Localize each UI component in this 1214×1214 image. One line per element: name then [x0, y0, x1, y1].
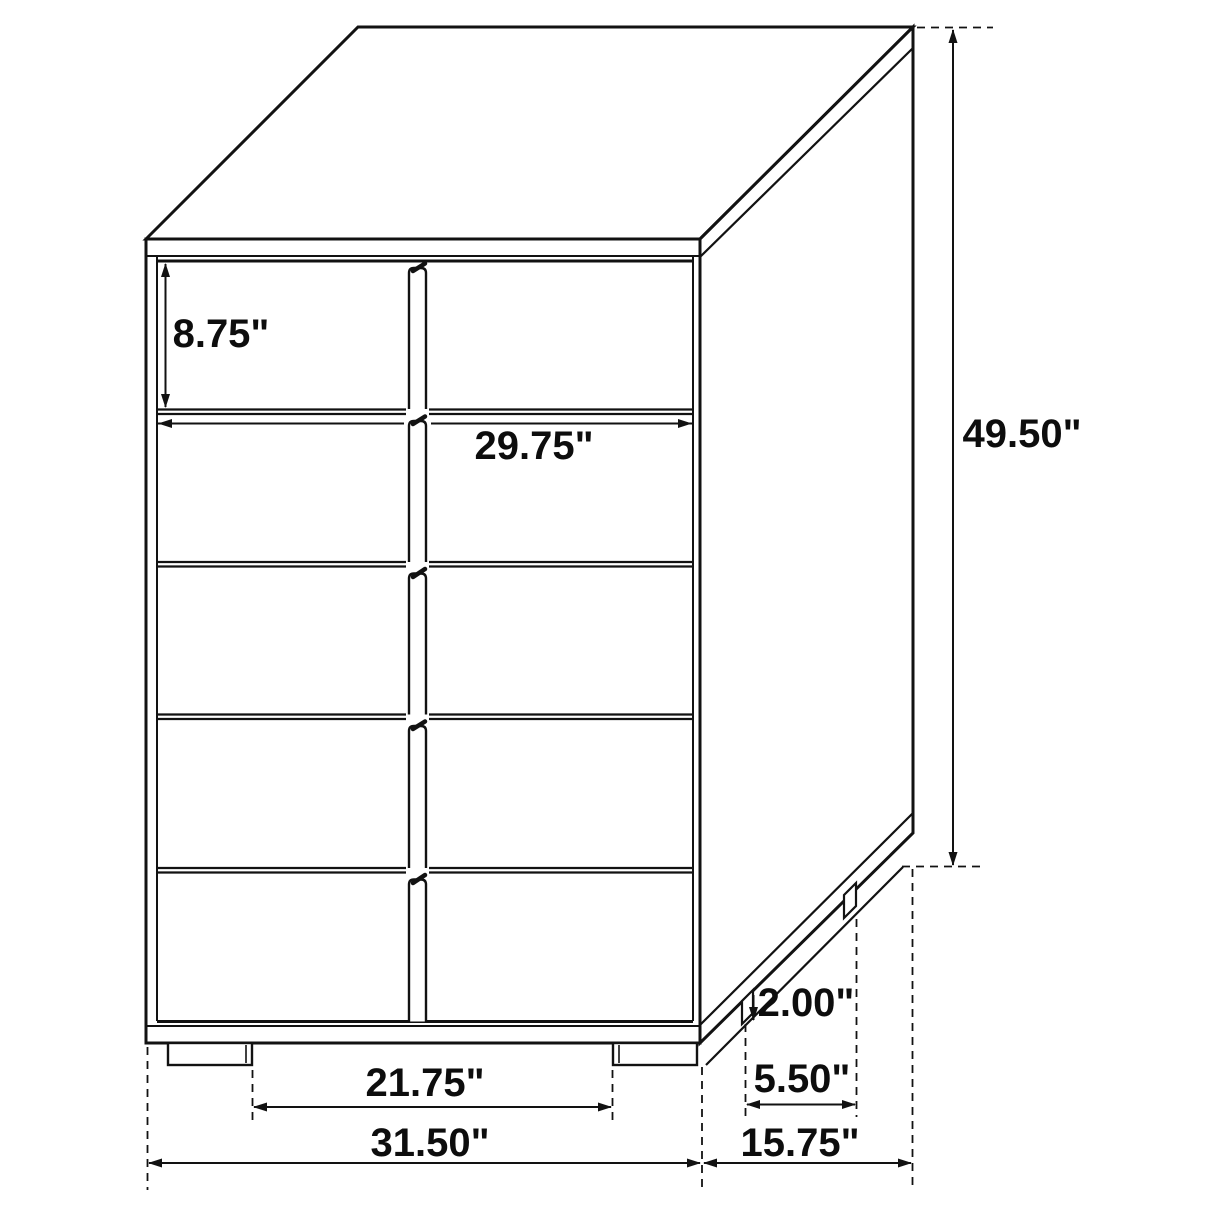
label-drawer-height: 8.75": [173, 312, 270, 356]
label-front-leg-gap: 21.75": [365, 1061, 484, 1105]
drawer-handles: [409, 264, 426, 1022]
arrowhead-right: [598, 1103, 612, 1112]
label-side-leg-span: 5.50": [754, 1057, 851, 1101]
front-leg-right: [613, 1043, 697, 1065]
label-leg-height: 2.00": [758, 981, 855, 1025]
label-overall-depth: 15.75": [740, 1121, 859, 1165]
arrowhead-left: [148, 1159, 162, 1168]
drawer-handle: [409, 421, 426, 562]
drawer-handle: [409, 880, 426, 1022]
arrowhead-left: [746, 1100, 760, 1109]
label-overall-height: 49.50": [962, 412, 1081, 456]
chest-drawing-canvas: 8.75" 29.75" 49.50" 2.00" 5.50" 21.75" 3…: [0, 0, 1214, 1214]
dimension-diagram: 8.75" 29.75" 49.50" 2.00" 5.50" 21.75" 3…: [0, 0, 1214, 1214]
arrowhead-right: [898, 1159, 912, 1168]
drawer-handle: [409, 268, 426, 409]
arrowhead-down: [949, 852, 958, 866]
arrowhead-left: [703, 1159, 717, 1168]
cabinet-body: [146, 27, 913, 1065]
arrowhead-up: [949, 29, 958, 43]
arrowhead-right: [687, 1159, 701, 1168]
label-opening-width: 29.75": [474, 424, 593, 468]
arrowhead-right: [842, 1100, 856, 1109]
drawer-handle: [409, 574, 426, 715]
label-overall-width: 31.50": [370, 1121, 489, 1165]
arrowhead-left: [253, 1103, 267, 1112]
drawer-handle: [409, 726, 426, 868]
front-leg-left: [168, 1043, 252, 1065]
